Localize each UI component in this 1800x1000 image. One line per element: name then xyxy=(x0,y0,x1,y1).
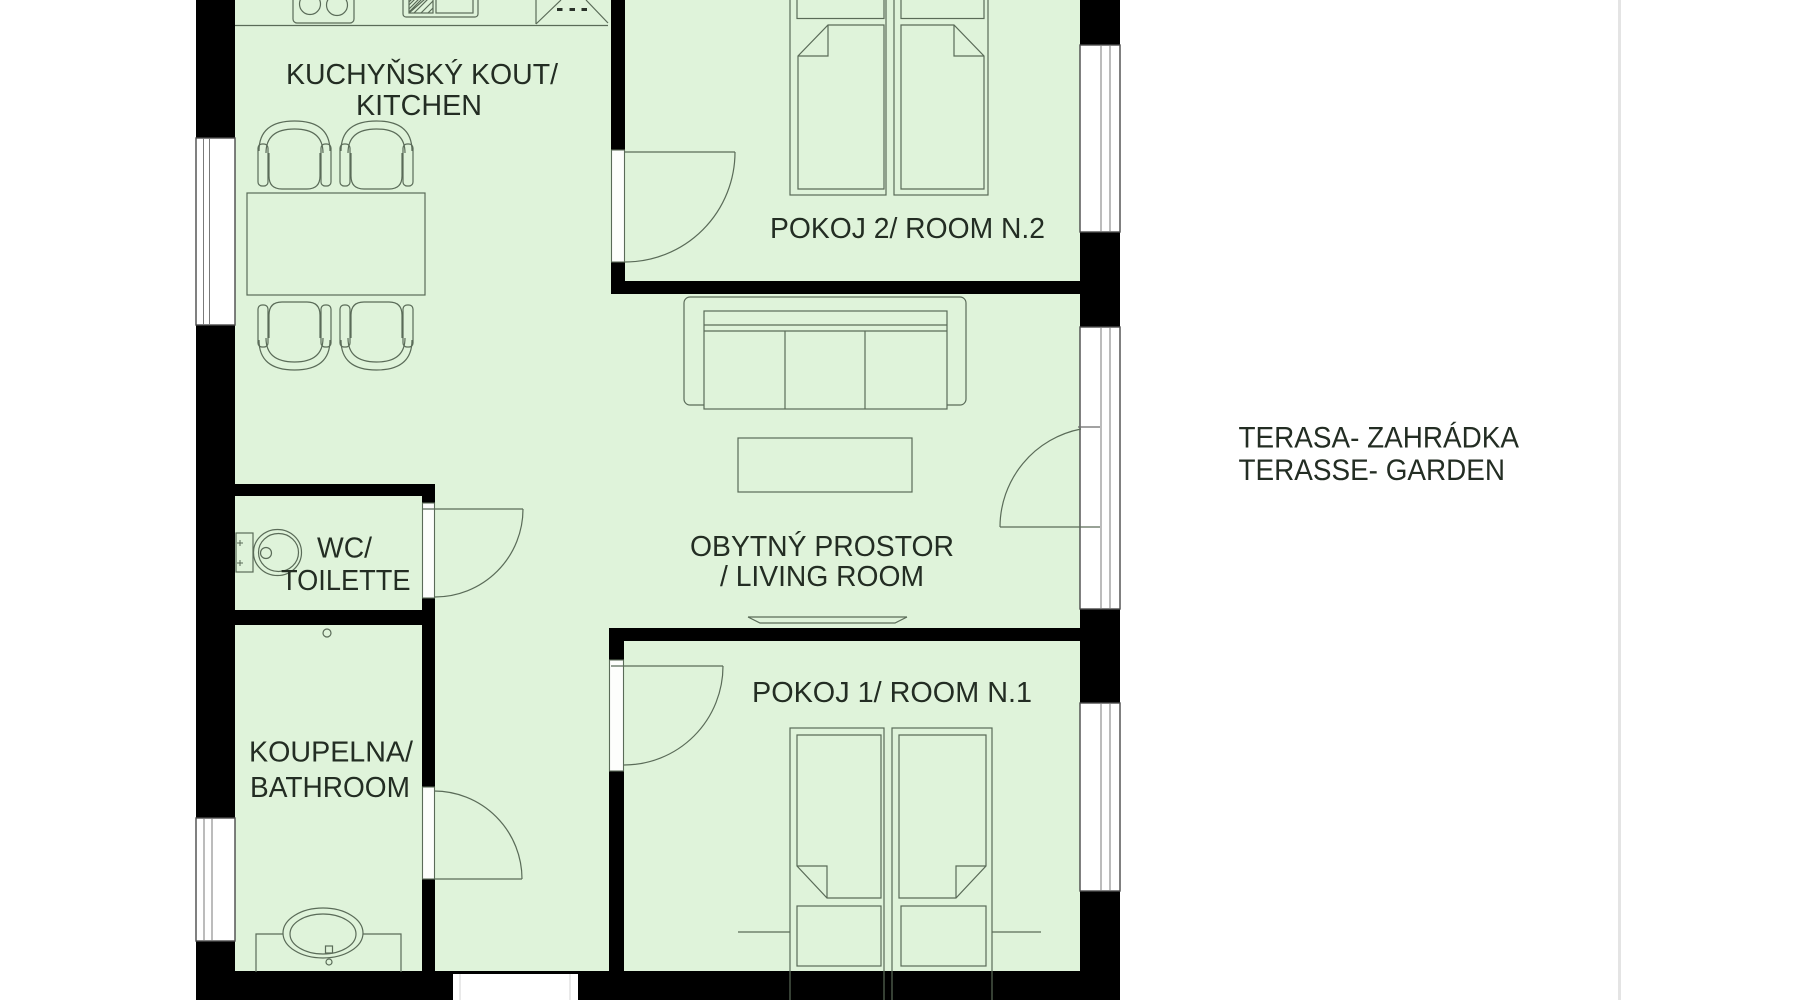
svg-text:KITCHEN: KITCHEN xyxy=(356,90,482,122)
svg-text:TERASA- ZAHRÁDKA: TERASA- ZAHRÁDKA xyxy=(1239,422,1520,455)
svg-text:POKOJ 2/ ROOM N.2: POKOJ 2/ ROOM N.2 xyxy=(770,213,1045,245)
svg-text:/ LIVING ROOM: / LIVING ROOM xyxy=(720,561,924,593)
svg-text:WC/: WC/ xyxy=(317,533,373,565)
svg-text:OBYTNÝ PROSTOR: OBYTNÝ PROSTOR xyxy=(690,530,954,563)
svg-text:BATHROOM: BATHROOM xyxy=(250,772,410,804)
svg-text:TERASSE- GARDEN: TERASSE- GARDEN xyxy=(1239,454,1506,487)
svg-text:TOILETTE: TOILETTE xyxy=(281,565,411,597)
svg-text:KUCHYŇSKÝ KOUT/: KUCHYŇSKÝ KOUT/ xyxy=(286,58,559,91)
svg-text:KOUPELNA/: KOUPELNA/ xyxy=(249,737,414,769)
svg-text:POKOJ 1/ ROOM N.1: POKOJ 1/ ROOM N.1 xyxy=(752,677,1032,709)
